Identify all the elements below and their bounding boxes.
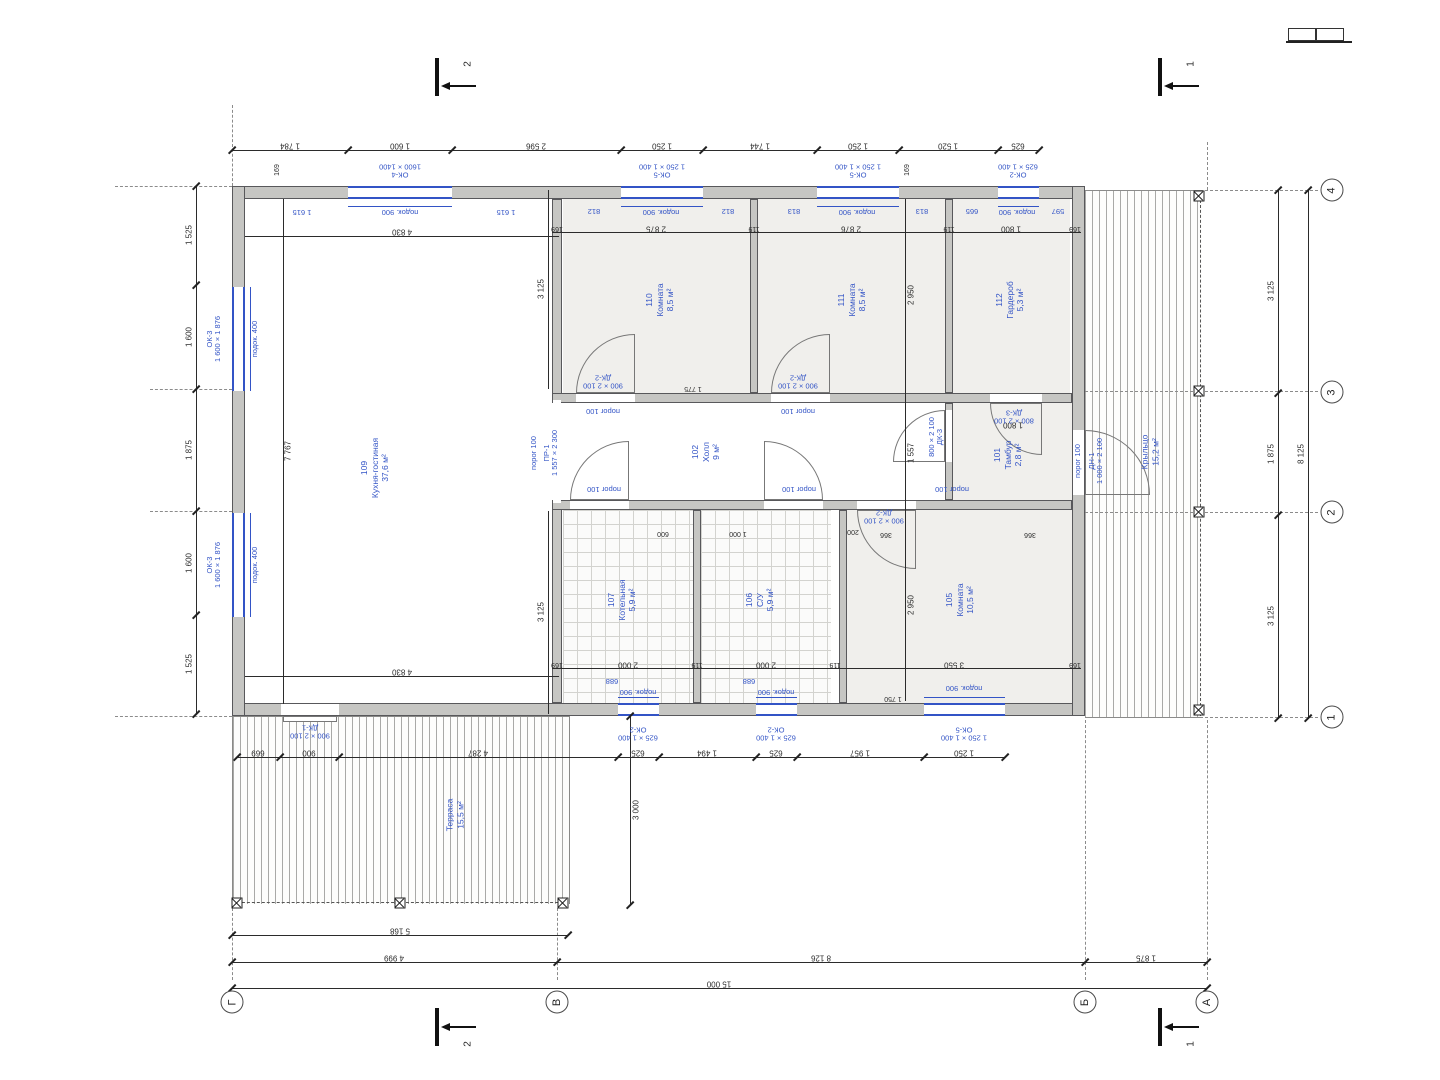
sill-label: подок. 900: [643, 208, 680, 216]
section-arrow: [448, 85, 476, 87]
sill-line: [348, 206, 452, 207]
dim-label: 1 600: [390, 141, 410, 150]
dim-label-blue: 1 615: [293, 208, 312, 216]
section-arrow: [1171, 85, 1199, 87]
title-stamp-base: [1286, 41, 1352, 43]
dim-label: 3 000: [633, 800, 642, 820]
dim-label: 3 125: [538, 602, 547, 622]
threshold-label: порог 100: [587, 485, 621, 493]
section-number: 2: [463, 1041, 474, 1047]
door-gap-room110: [576, 394, 635, 402]
dim-label: 169: [274, 164, 282, 176]
dim-label: 119: [748, 224, 759, 232]
dim-label: 1 000: [729, 529, 747, 537]
section-mark-1-bottom: [1158, 1008, 1162, 1046]
threshold-label: порог 100: [1074, 444, 1082, 478]
dim-label: 3 550: [944, 660, 964, 669]
sill-label: подок. 400: [251, 321, 259, 358]
section-arrow: [1171, 1026, 1199, 1028]
section-arrow: [448, 1026, 476, 1028]
dim-label: 625: [1011, 141, 1024, 150]
door-gap-tambour-hall: [946, 410, 952, 462]
threshold-label: порог 100: [781, 407, 815, 415]
window-tag-ok2: ОК-2625 × 1 400: [998, 162, 1038, 179]
post-symbol: [395, 898, 406, 909]
dim-tick: [1274, 714, 1282, 722]
grid-bubble-a: А: [1196, 991, 1219, 1014]
door-tag-dn1: ДН-11 000 × 2 100: [1088, 438, 1105, 484]
dim-label: 366: [1024, 530, 1036, 538]
dim-label: 1 520: [938, 141, 958, 150]
grid-bubble-b: Б: [1074, 991, 1097, 1014]
section-number: 1: [1186, 1041, 1197, 1047]
dimension-line-bottom: [232, 962, 1207, 963]
sill-label: подок. 900: [620, 688, 657, 696]
dimension-line-top: [232, 150, 1039, 151]
dim-label: 669: [251, 748, 264, 757]
axis-line: [1207, 142, 1208, 190]
window-tag-ok5: ОК-51 250 × 1 400: [639, 162, 685, 179]
dim-label: 1 957: [850, 748, 870, 757]
post-symbol: [1194, 191, 1205, 202]
sill-line: [817, 206, 899, 207]
window-tag-ok2: 625 × 1 400ОК-2: [756, 725, 796, 742]
threshold-label: порог 100: [782, 485, 816, 493]
dim-label: 1 525: [186, 654, 195, 674]
grid-bubble-2: 2: [1321, 501, 1344, 524]
sill-label: подок. 900: [382, 208, 419, 216]
dim-label-blue: 812: [588, 207, 601, 215]
sill-label: подок. 900: [758, 688, 795, 696]
porch-edge-dashed: [1200, 190, 1201, 716]
dim-label: 1 250: [848, 141, 868, 150]
dimension-line-right-total: [1308, 190, 1309, 718]
grid-bubble-4: 4: [1321, 179, 1344, 202]
axis-line: [150, 511, 232, 512]
door-gap-garderob: [990, 394, 1042, 402]
window-ok5-room111: [817, 186, 899, 199]
window-tag-ok2: 625 × 1 400ОК-2: [618, 725, 658, 742]
door-tag-dk3: 800 × 2 100ДК-3: [928, 417, 945, 457]
sill-line: [621, 206, 703, 207]
dim-label: 1 800: [1001, 224, 1021, 233]
axis-line: [1207, 720, 1208, 980]
dim-label: 1 525: [186, 225, 195, 245]
dim-label: 1 875: [186, 440, 195, 460]
threshold-label: порог 100: [935, 485, 969, 493]
section-arrowhead: [1164, 82, 1173, 90]
window-ok4-kitchen: [348, 186, 452, 199]
dim-label-blue: 597: [1052, 207, 1065, 215]
wall-kitchen-lower: [552, 503, 562, 703]
post-symbol: [1194, 705, 1205, 716]
dim-label: 3 125: [538, 279, 547, 299]
floor-plan-drawing: 1 784 1 600 2 596 1 250 1 744 1 250 1 52…: [0, 0, 1440, 1080]
wall-106-105: [839, 510, 847, 703]
dim-label: 1 250: [954, 748, 974, 757]
dim-tick: [564, 931, 572, 939]
sill-label: подок. 900: [839, 208, 876, 216]
dim-label: 119: [829, 660, 840, 668]
dim-label-blue: 665: [966, 207, 979, 215]
axis-line: [115, 186, 232, 187]
dim-label: 600: [657, 529, 669, 537]
dim-label-blue: 1 615: [497, 208, 516, 216]
window-tag-ok3: ОК-31 600 × 1 876: [206, 542, 223, 588]
window-ok5-room110: [621, 186, 703, 199]
dim-label: 119: [943, 224, 954, 232]
dim-label: 200: [847, 527, 859, 535]
door-gap-room111: [771, 394, 830, 402]
dimension-line-left: [196, 186, 197, 714]
dim-label: 15 000: [707, 979, 731, 988]
door-gap-room106: [764, 501, 823, 509]
sill-label: подок. 900: [946, 684, 983, 692]
dim-label: 1 875: [1136, 953, 1156, 962]
window-tag-ok3: ОК-31 600 × 1 876: [206, 316, 223, 362]
door-tag-dk2: 900 × 2 100ДК-2: [778, 373, 818, 390]
dimension-line-right: [1278, 190, 1279, 718]
room-label-111: 111Комната8,5 м²: [836, 283, 868, 316]
dim-label: 169: [1069, 660, 1081, 668]
dim-tick: [626, 901, 634, 909]
dim-label: 2 950: [908, 285, 917, 305]
room-label-porch: Крыльцо15,2 м²: [1139, 435, 1160, 470]
room-label-102: 102Холл9 м²: [690, 442, 722, 462]
window-ok3-lower: [232, 513, 245, 617]
dim-label: 625: [631, 748, 644, 757]
grid-bubble-g: Г: [221, 991, 244, 1014]
dim-label: 1 784: [280, 141, 300, 150]
dim-label: 3 125: [1268, 281, 1277, 301]
door-tag-dk2: 900 × 2 100ДК-2: [864, 508, 904, 525]
dim-label: 1 557: [908, 443, 917, 463]
room-label-110: 110Комната8,5 м²: [644, 283, 676, 316]
window-ok3-upper: [232, 287, 245, 391]
grid-bubble-3: 3: [1321, 381, 1344, 404]
axis-line: [557, 908, 558, 980]
window-ok2-room112: [998, 186, 1039, 199]
dim-label: 4 287: [468, 748, 488, 757]
threshold-label: порог 100: [586, 407, 620, 415]
section-arrowhead: [441, 82, 450, 90]
dim-label: 1 600: [186, 553, 195, 573]
dim-label: 8 125: [1298, 444, 1307, 464]
dim-label: 366: [880, 530, 892, 538]
dim-label: 2 875: [646, 224, 666, 233]
section-number: 1: [1186, 61, 1197, 67]
threshold-label: порог 100: [530, 436, 538, 470]
dim-label: 2 876: [841, 224, 861, 233]
axis-line: [115, 716, 232, 717]
dim-label-blue: 813: [788, 207, 801, 215]
window-tag-ok4: ОК-41600 × 1400: [379, 162, 421, 179]
dim-label: 169: [551, 224, 563, 232]
dim-label: 1 775: [684, 384, 702, 392]
dim-label: 1 744: [750, 141, 770, 150]
grid-bubble-1: 1: [1321, 706, 1344, 729]
sill-line: [756, 697, 797, 698]
dim-label-blue: 812: [722, 207, 735, 215]
axis-line: [150, 389, 232, 390]
sill-line: [618, 697, 659, 698]
grid-bubble-v: В: [546, 991, 569, 1014]
post-symbol: [1194, 507, 1205, 518]
dim-label: 1 875: [1268, 444, 1277, 464]
sill-label: подок. 900: [999, 208, 1036, 216]
dim-label: 1 600: [186, 327, 195, 347]
dim-label: 169: [551, 660, 563, 668]
dim-label: 625: [769, 748, 782, 757]
post-symbol: [1194, 386, 1205, 397]
dim-label: 4 999: [384, 953, 404, 962]
sill-line: [924, 697, 1005, 698]
room-label-109: 109Кухня-гостиная37,6 м²: [359, 438, 391, 498]
room-label-terrace: Терраса15,5 м²: [444, 799, 465, 832]
section-mark-2-top: [435, 58, 439, 96]
room-label-106: 106С/У5,9 м²: [744, 589, 776, 612]
room-label-101: 101Тамбур2,8 м²: [992, 441, 1024, 470]
dim-label: 7 767: [285, 441, 294, 461]
dim-label: 2 950: [908, 595, 917, 615]
title-stamp-cell: [1288, 28, 1316, 41]
dim-tick: [1001, 753, 1009, 761]
section-arrowhead: [1164, 1023, 1173, 1031]
dimension-line-3125a: [548, 190, 549, 389]
section-mark-1-top: [1158, 58, 1162, 96]
dim-label: 2 000: [618, 660, 638, 669]
section-number: 2: [463, 61, 474, 67]
opening-tag-pr1: ПР-11 557 × 2 300: [543, 430, 560, 476]
dim-label: 169: [1069, 224, 1081, 232]
dim-tick: [1035, 146, 1043, 154]
terrace-deck: [232, 716, 570, 904]
window-ok2-room106: [756, 703, 797, 716]
outer-wall-left: [232, 186, 245, 716]
axis-line: [232, 908, 233, 980]
axis-line: [232, 105, 233, 186]
dim-tick: [1304, 714, 1312, 722]
dim-label: 1 494: [697, 748, 717, 757]
door-gap-terrace: [281, 704, 339, 715]
axis-line: [1085, 717, 1318, 718]
door-gap-room107: [570, 501, 629, 509]
section-arrowhead: [441, 1023, 450, 1031]
window-tag-ok5: 1 250 × 1 400ОК-5: [941, 725, 987, 742]
dim-label: 2 000: [756, 660, 776, 669]
room-label-105: 105Комната10,5 м²: [944, 583, 976, 616]
dim-label-blue: 688: [606, 677, 619, 685]
dim-label: 3 125: [1268, 606, 1277, 626]
dim-label: 4 830: [392, 227, 412, 236]
door-tag-dk2: 900 × 2 100ДК-2: [583, 373, 623, 390]
axis-line: [1085, 720, 1086, 980]
section-mark-2-bottom: [435, 1008, 439, 1046]
dimension-line-3125b: [548, 511, 549, 714]
dimension-line-mid: [237, 757, 1005, 758]
dim-label: 1 250: [652, 141, 672, 150]
dim-label-blue: 688: [743, 677, 756, 685]
window-ok2-room107: [618, 703, 659, 716]
dim-label: 8 126: [811, 953, 831, 962]
dim-label: 169: [904, 164, 912, 176]
post-symbol: [558, 898, 569, 909]
title-stamp-cell: [1316, 28, 1344, 41]
dim-label: 900: [302, 748, 315, 757]
wall-107-106: [693, 510, 701, 703]
dim-label: 2 596: [526, 141, 546, 150]
dim-label: 119: [691, 660, 702, 668]
dim-label-blue: 813: [916, 207, 929, 215]
room-label-112: 112Гардероб5,3 м²: [994, 281, 1026, 318]
dim-label: 5 168: [390, 926, 410, 935]
window-tag-ok5: ОК-51 250 × 1 400: [835, 162, 881, 179]
sill-line: [998, 206, 1039, 207]
dim-label: 4 830: [392, 667, 412, 676]
post-symbol: [232, 898, 243, 909]
door-tag-dk3: 800 × 2 100ДК-3: [994, 408, 1034, 425]
door-tag-dk1: 900 × 2 100ДК-1: [290, 723, 330, 740]
sill-label: подок. 400: [251, 547, 259, 584]
window-ok5-room105: [924, 703, 1005, 716]
room-label-107: 107Котельная5,9 м²: [606, 579, 638, 620]
terrace-door-leaf: [283, 716, 337, 722]
dim-label: 1 750: [884, 694, 902, 702]
